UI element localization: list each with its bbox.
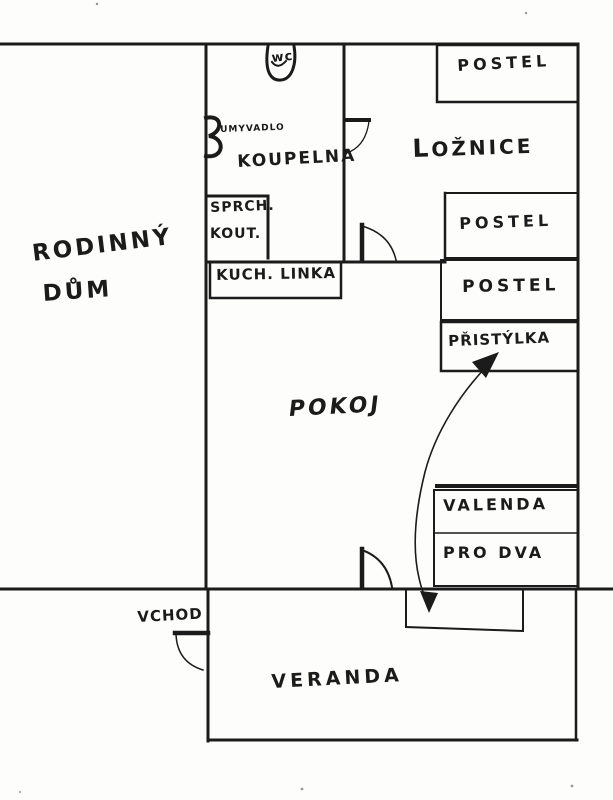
bed-label-top: POSTEL [457,53,551,74]
bed-label-lower: POSTEL [462,277,559,296]
house-label-line2: DŮM [42,278,113,306]
scan-speckle [96,3,98,5]
floor-plan-page: RODINNÝ DŮM wc UMYVADLO KOUPELNA SPRCH. … [0,0,613,800]
move-bed-arrow-head-top [472,352,499,378]
door-arc-veranda [362,550,392,587]
room-label-living: POKOJ [287,394,382,421]
door-arc-hall [362,226,396,260]
kitchen-unit-label: KUCH. LINKA [216,266,336,283]
shower-label-line1: SPRCH. [210,199,275,215]
scan-speckle [571,785,574,788]
daybed-label-line1: VALENDA [443,496,548,514]
scan-speckle [301,788,304,791]
scan-speckle [19,791,21,793]
room-label-bedroom: LOŽNICE [412,132,534,161]
daybed-label-line2: PRO DVA [443,545,544,561]
door-arc-entrance [176,634,203,670]
toilet-label: wc [271,50,294,65]
sink-icon [206,117,221,156]
scan-speckle [525,12,527,14]
move-bed-arrow-curve [415,366,487,600]
entrance-label: VCHOD [137,607,203,625]
move-bed-arrow-head-bottom [420,591,438,613]
extra-bed-label: PŘISTÝLKA [448,330,550,349]
bed-label-middle: POSTEL [459,213,552,232]
shower-label-line2: KOUT. [210,227,261,241]
